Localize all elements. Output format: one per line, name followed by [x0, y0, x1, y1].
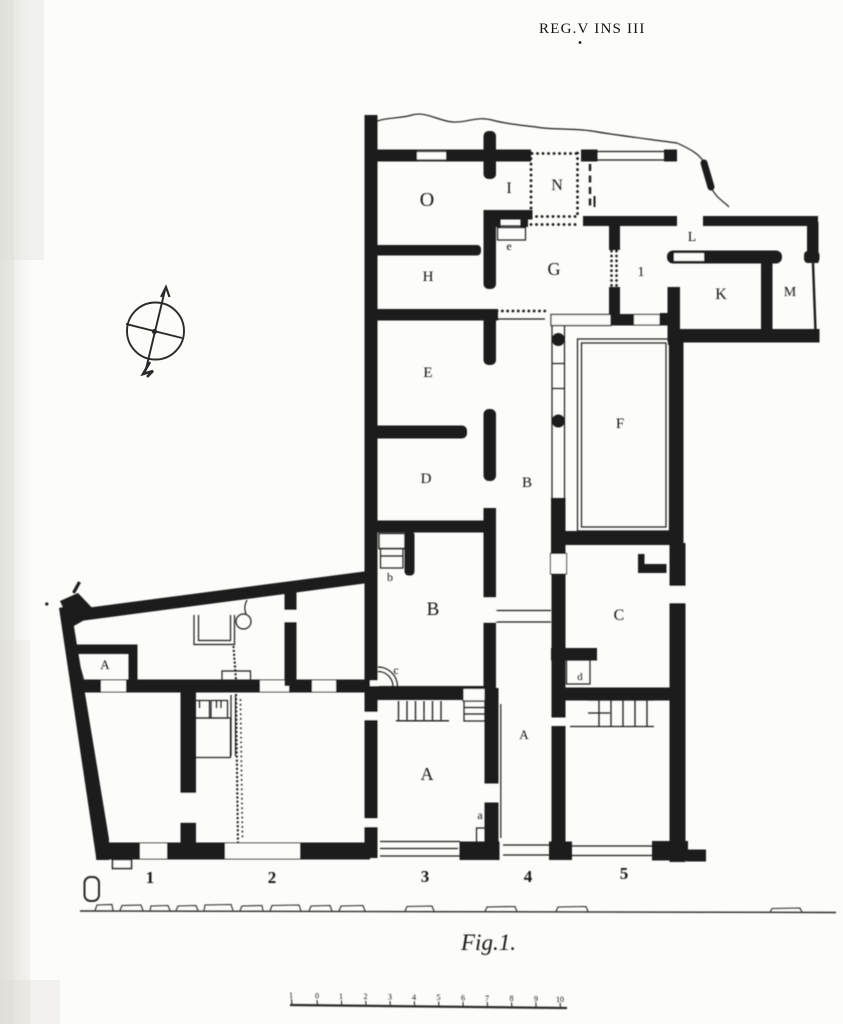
- svg-text:5: 5: [620, 864, 629, 883]
- svg-text:4: 4: [524, 867, 533, 886]
- svg-text:6: 6: [461, 994, 465, 1003]
- svg-text:A: A: [421, 764, 434, 784]
- svg-text:a: a: [477, 808, 483, 822]
- svg-text:H: H: [423, 269, 434, 285]
- svg-text:4: 4: [412, 993, 416, 1002]
- svg-text:E: E: [423, 365, 432, 381]
- svg-text:M: M: [784, 285, 797, 300]
- svg-text:D: D: [421, 471, 432, 487]
- svg-text:8: 8: [510, 994, 514, 1003]
- svg-text:A: A: [100, 657, 110, 672]
- svg-text:1: 1: [638, 265, 645, 280]
- svg-text:G: G: [548, 259, 561, 279]
- svg-text:K: K: [715, 286, 727, 303]
- svg-text:9: 9: [534, 995, 538, 1004]
- svg-text:B: B: [427, 599, 440, 620]
- svg-text:REG.V INS III: REG.V INS III: [539, 21, 646, 37]
- svg-text:5: 5: [437, 993, 441, 1002]
- svg-text:O: O: [420, 189, 434, 211]
- svg-text:0: 0: [315, 992, 319, 1001]
- svg-text:1: 1: [146, 868, 155, 887]
- svg-text:10: 10: [556, 995, 564, 1004]
- svg-text:2: 2: [364, 992, 368, 1001]
- svg-text:B: B: [522, 475, 532, 491]
- svg-text:3: 3: [388, 993, 392, 1002]
- svg-text:c: c: [393, 663, 398, 677]
- svg-text:1: 1: [339, 992, 343, 1001]
- svg-text:C: C: [614, 607, 625, 624]
- svg-text:2: 2: [268, 868, 277, 887]
- svg-text:A: A: [519, 727, 529, 742]
- svg-text:L: L: [688, 230, 697, 245]
- svg-text:1: 1: [289, 991, 293, 1000]
- svg-text:F: F: [616, 416, 624, 432]
- svg-text:Fig.1.: Fig.1.: [460, 930, 516, 955]
- svg-text:e: e: [506, 239, 511, 253]
- svg-text:b: b: [387, 570, 393, 584]
- svg-text:3: 3: [421, 867, 430, 886]
- svg-text:d: d: [577, 671, 583, 683]
- svg-text:7: 7: [485, 994, 489, 1003]
- svg-text:N: N: [551, 177, 563, 194]
- svg-text:I: I: [506, 180, 511, 197]
